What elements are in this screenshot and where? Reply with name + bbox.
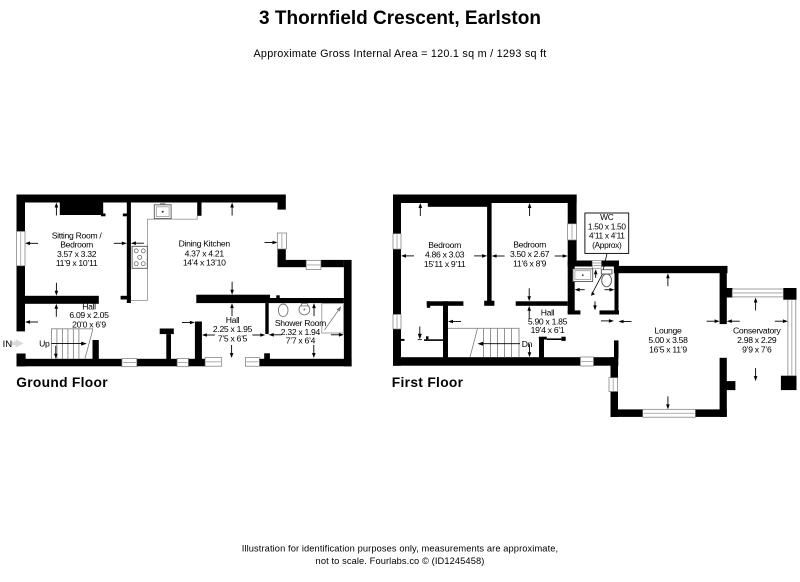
svg-text:Bedroom: Bedroom [60,240,93,250]
svg-text:Illustration for identificatio: Illustration for identification purposes… [242,544,558,554]
svg-text:14’4 x 13’10: 14’4 x 13’10 [183,258,226,268]
svg-text:Lounge: Lounge [655,325,682,335]
svg-text:Bedroom: Bedroom [428,240,461,250]
svg-text:Approximate Gross Internal Are: Approximate Gross Internal Area = 120.1 … [253,48,546,60]
svg-text:not to scale. Fourlabs.co © (I: not to scale. Fourlabs.co © (ID1245458) [316,556,485,566]
svg-text:Dining Kitchen: Dining Kitchen [179,239,231,249]
svg-text:7’7 x 6’4: 7’7 x 6’4 [286,335,316,345]
svg-text:15’11 x 9’11: 15’11 x 9’11 [424,259,466,269]
svg-text:3 Thornfield Crescent, Earlsto: 3 Thornfield Crescent, Earlston [259,8,541,29]
svg-text:IN: IN [3,339,13,350]
svg-text:4.86 x 3.03: 4.86 x 3.03 [425,250,465,260]
svg-text:Dn: Dn [522,339,533,349]
svg-text:Ground Floor: Ground Floor [16,375,108,390]
svg-text:Conservatory: Conservatory [733,325,782,335]
svg-text:16’5 x 11’9: 16’5 x 11’9 [649,344,687,354]
svg-text:11’6 x 8’9: 11’6 x 8’9 [513,258,547,268]
svg-text:Up: Up [39,338,50,348]
svg-text:20’0 x 6’9: 20’0 x 6’9 [72,320,106,330]
svg-text:2.98 x 2.29: 2.98 x 2.29 [737,335,777,345]
svg-text:19’4 x 6’1: 19’4 x 6’1 [531,325,565,335]
svg-text:Bedroom: Bedroom [513,240,546,250]
svg-text:11’9 x 10’11: 11’9 x 10’11 [56,258,98,268]
svg-text:6.09 x 2.05: 6.09 x 2.05 [69,310,109,320]
svg-text:7’5 x 6’5: 7’5 x 6’5 [218,334,248,344]
svg-text:5.00 x 3.58: 5.00 x 3.58 [648,335,688,345]
svg-text:(Approx): (Approx) [592,240,622,250]
svg-text:9’9 x 7’6: 9’9 x 7’6 [742,344,772,354]
svg-text:First Floor: First Floor [392,375,464,390]
